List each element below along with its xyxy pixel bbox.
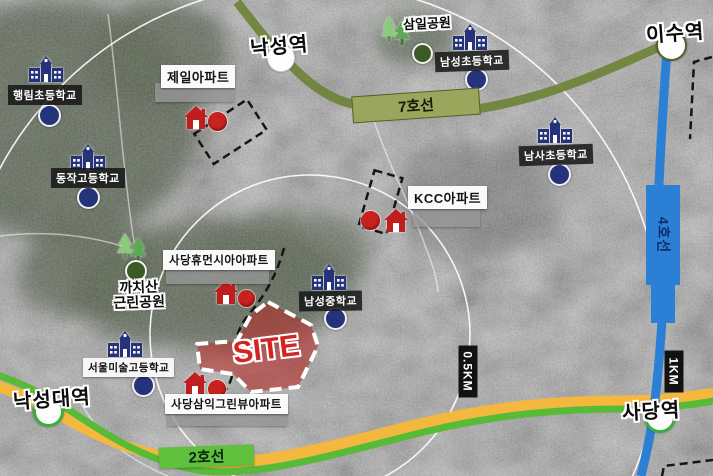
label-shadow-box: [166, 268, 269, 284]
school-icon: [28, 55, 64, 87]
school-marker: [77, 186, 100, 209]
apartment-marker: [361, 211, 380, 230]
school-label-seoul-art: 서울미술고등학교: [83, 358, 174, 377]
park-label-kkachisan: 까치산 근린공원: [104, 279, 173, 312]
site-location-map: 낙성역 이수역 낙성대역 사당역 7호선 4호선 2호선 0.5KM 1KM 행…: [0, 0, 713, 476]
apartment-label-kcc: KCC아파트: [408, 186, 487, 209]
school-icon: [537, 116, 573, 148]
distance-label-500m: 0.5KM: [459, 346, 478, 398]
school-label-namseong-middle: 남성중학교: [299, 290, 362, 311]
school-marker: [38, 104, 61, 127]
school-label-haengnim: 행림초등학교: [8, 85, 82, 105]
line-4-label: 4호선: [646, 185, 680, 285]
park-marker: [412, 43, 433, 64]
map-background: [0, 0, 713, 476]
station-label-nakseong: 낙성역: [249, 28, 310, 62]
house-icon: [183, 105, 209, 135]
park-label-samil: 삼일공원: [403, 12, 452, 33]
station-label-sadang: 사당역: [621, 393, 681, 425]
school-label-namsa: 남사초등학교: [519, 144, 593, 167]
school-label-namseong-elem: 남성초등학교: [435, 50, 509, 73]
school-label-dongjak: 동작고등학교: [51, 168, 125, 188]
apartment-marker: [238, 290, 255, 307]
apartment-label-jeil: 제일아파트: [161, 65, 235, 88]
line-2-label: 2호선: [159, 444, 255, 468]
apartment-label-sadang-samik: 사당삼익그린뷰아파트: [165, 394, 288, 414]
school-marker: [132, 374, 155, 397]
house-icon: [213, 280, 239, 310]
school-marker: [548, 163, 571, 186]
station-label-nakseongdae: 낙성대역: [12, 380, 91, 414]
station-label-isu: 이수역: [645, 15, 705, 48]
apartment-marker: [208, 112, 227, 131]
house-icon: [383, 208, 409, 238]
distance-label-1km: 1KM: [665, 351, 684, 393]
apartment-label-sadang-humansia: 사당휴먼시아아파트: [163, 250, 275, 270]
